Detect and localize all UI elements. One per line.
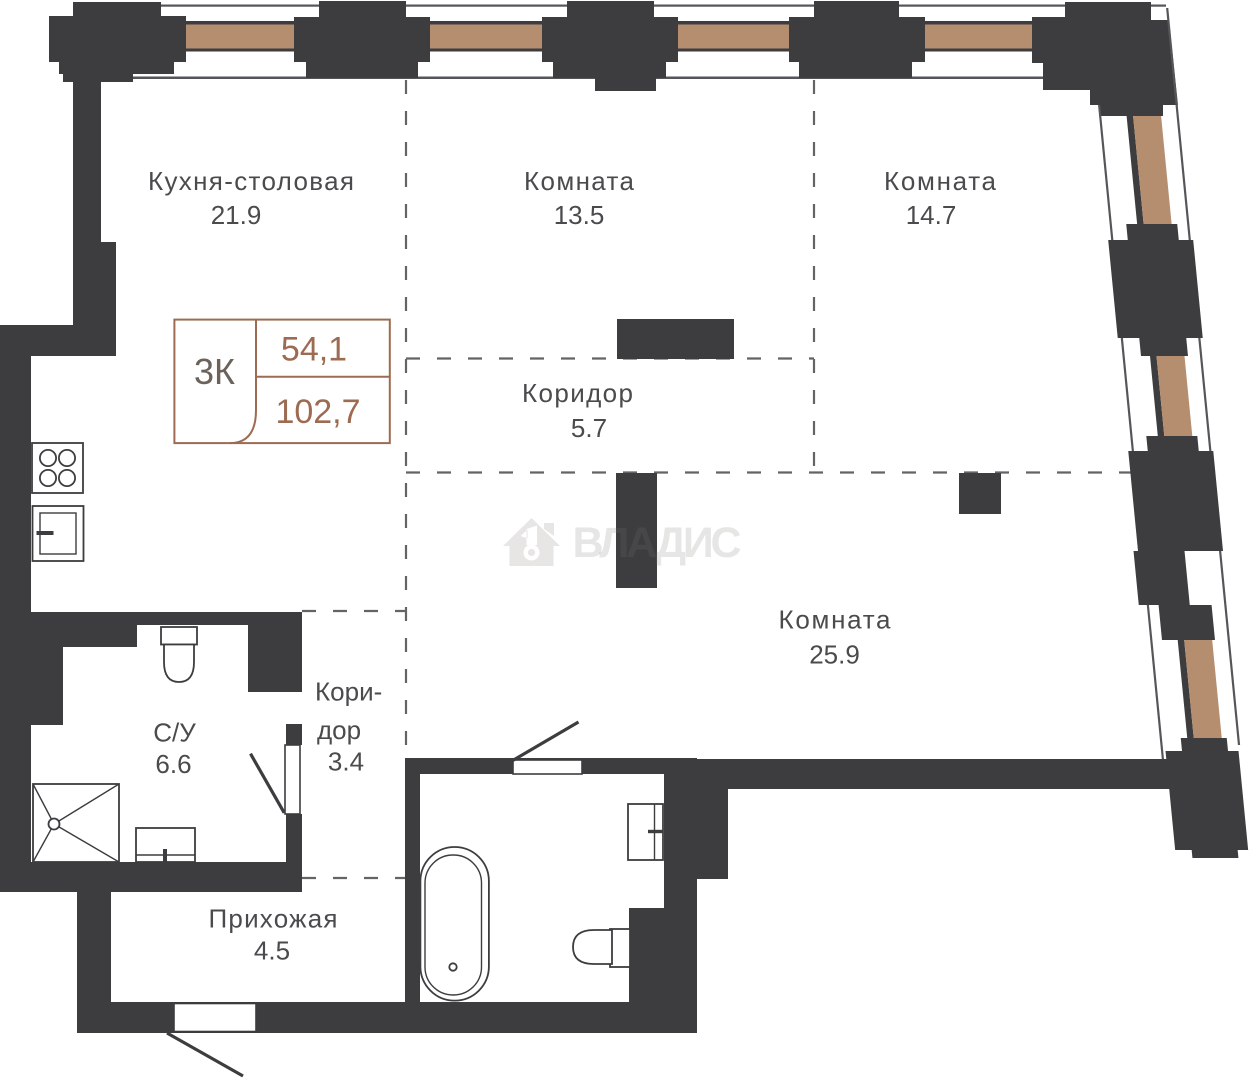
- svg-text:14.7: 14.7: [906, 200, 957, 230]
- svg-text:Комната: Комната: [884, 166, 997, 196]
- svg-text:Коридор: Коридор: [522, 378, 633, 408]
- svg-text:25.9: 25.9: [809, 640, 860, 670]
- svg-text:Комната: Комната: [779, 605, 892, 635]
- svg-text:4.5: 4.5: [254, 936, 290, 966]
- svg-text:С/У: С/У: [153, 718, 196, 748]
- svg-text:ВЛАДИС: ВЛАДИС: [573, 519, 744, 567]
- svg-text:3К: 3К: [194, 351, 235, 392]
- svg-text:Прихожая: Прихожая: [209, 904, 338, 934]
- svg-text:Кори-: Кори-: [315, 677, 382, 707]
- svg-text:13.5: 13.5: [554, 200, 605, 230]
- svg-text:5.7: 5.7: [571, 413, 607, 443]
- svg-text:6.6: 6.6: [155, 749, 191, 779]
- svg-text:Комната: Комната: [524, 166, 635, 196]
- svg-text:дор: дор: [317, 715, 361, 745]
- svg-text:21.9: 21.9: [211, 200, 262, 230]
- svg-text:54,1: 54,1: [281, 331, 347, 369]
- svg-text:102,7: 102,7: [275, 393, 360, 431]
- svg-text:3.4: 3.4: [328, 747, 364, 777]
